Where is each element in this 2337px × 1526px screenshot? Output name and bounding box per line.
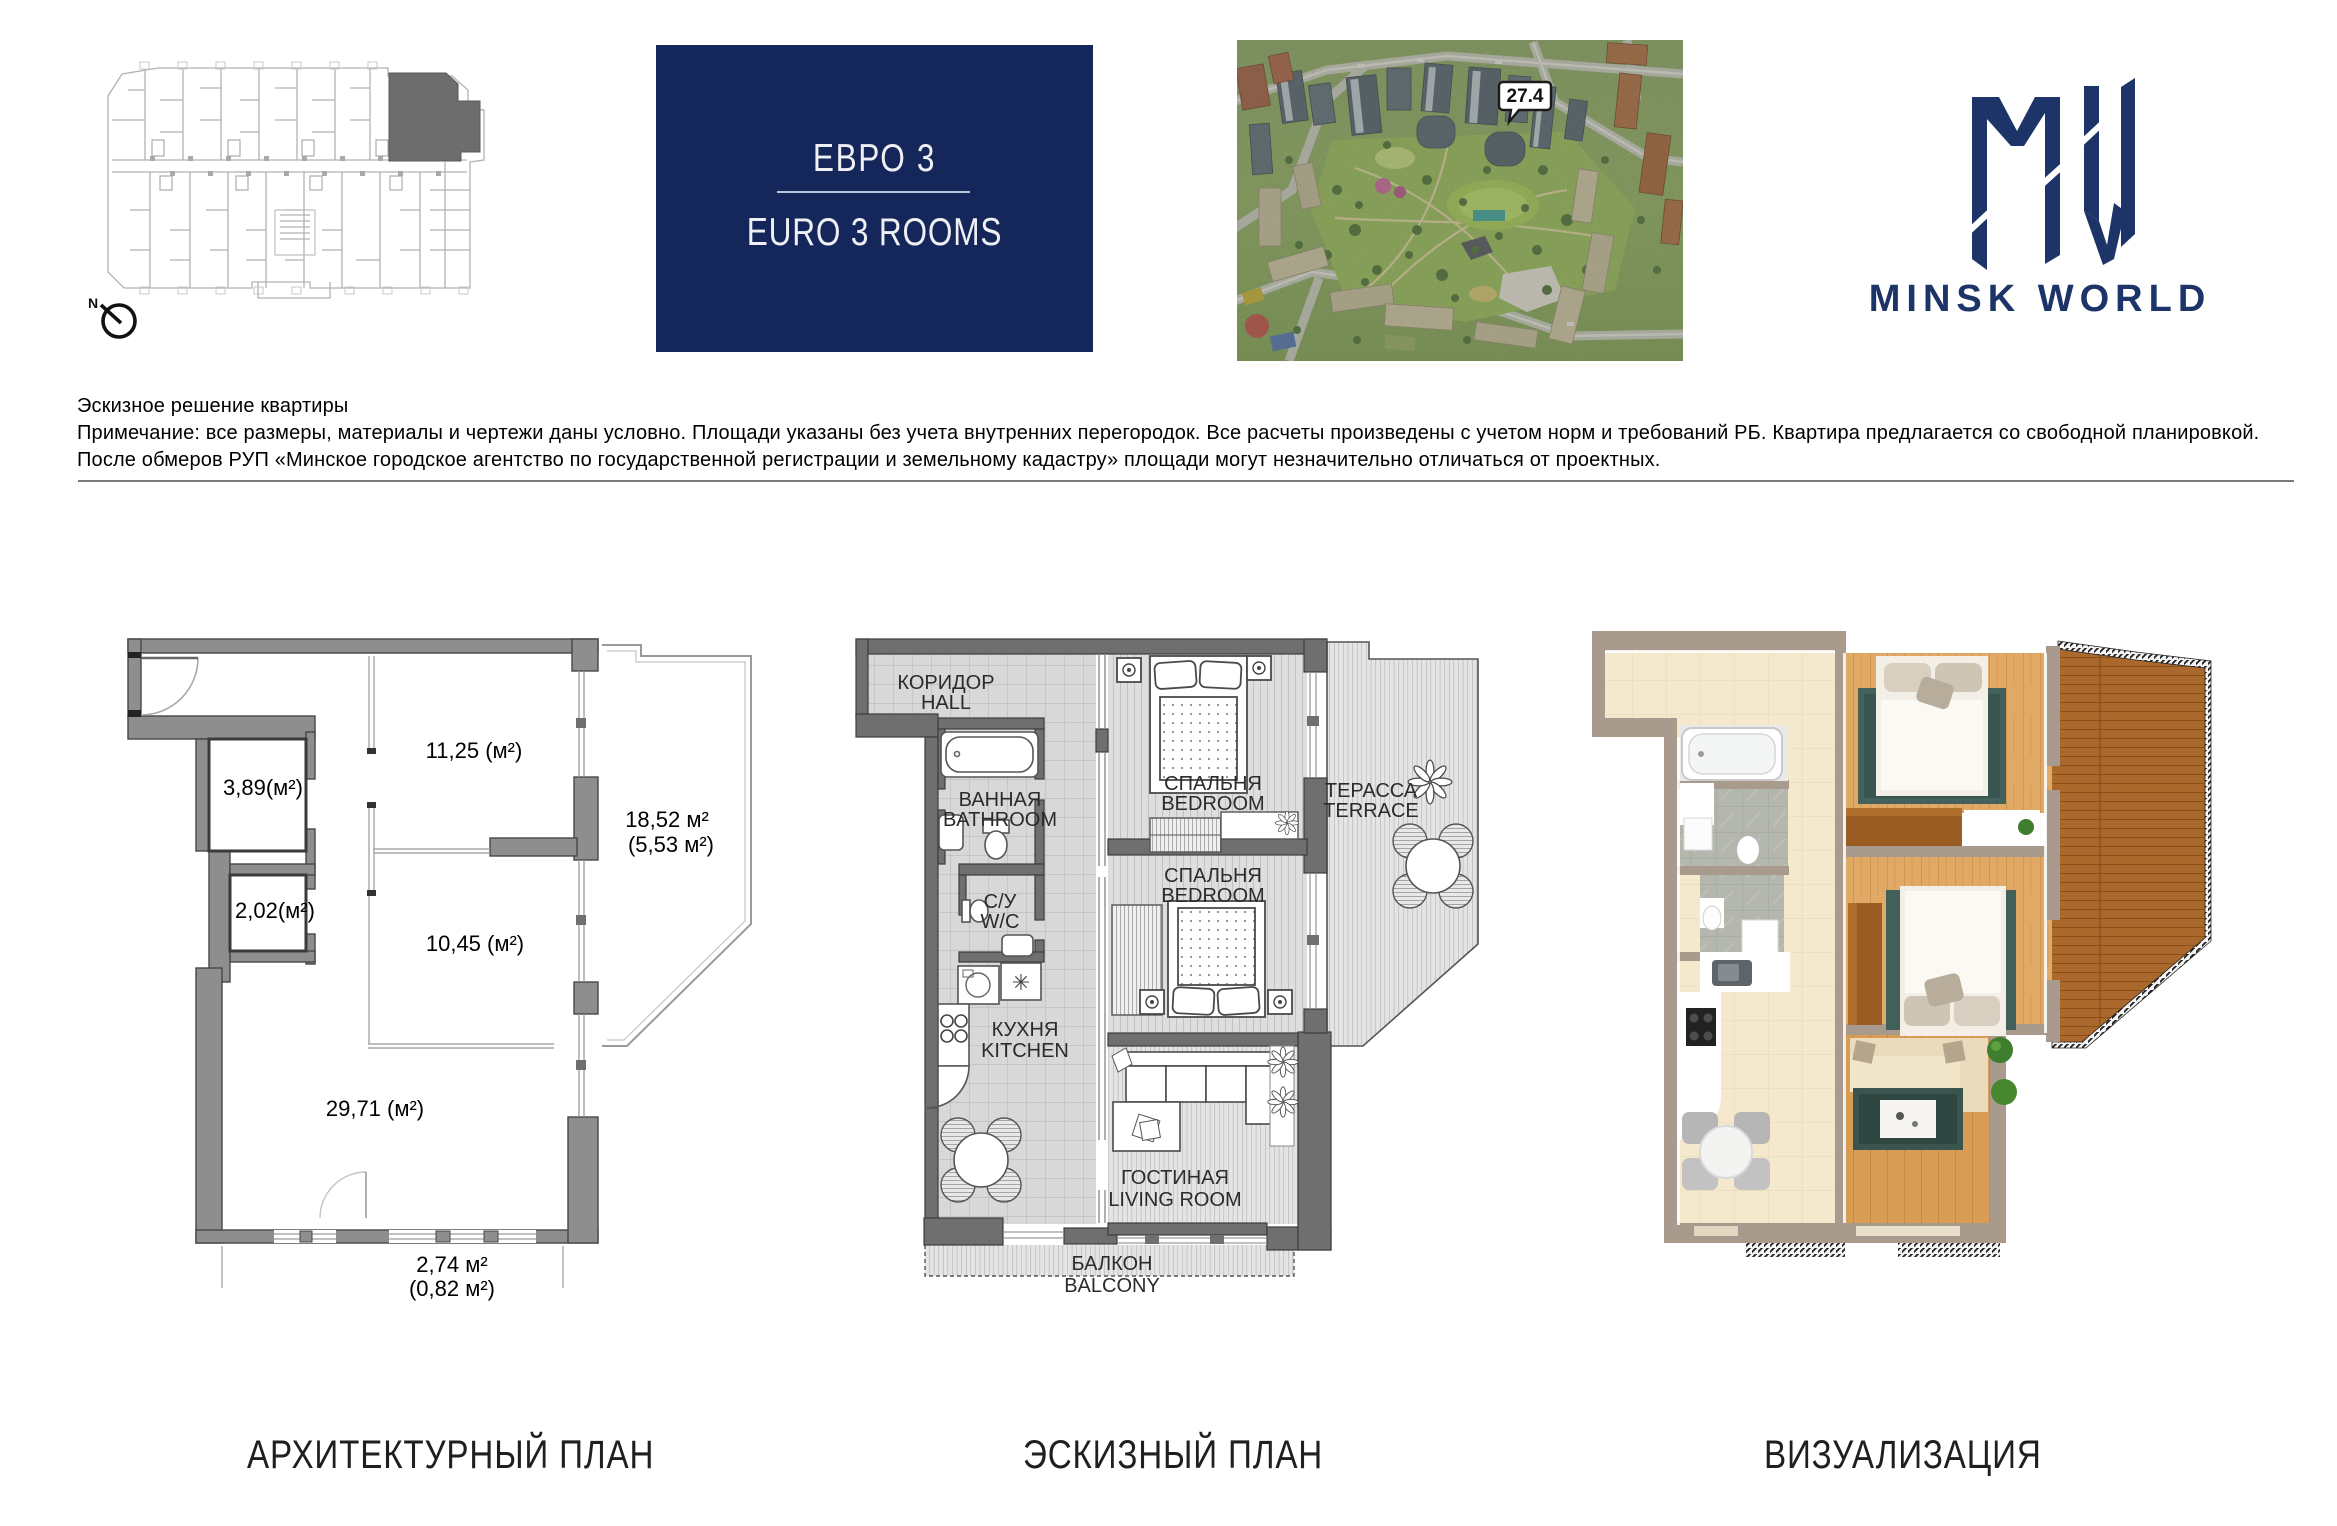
svg-text:BEDROOM: BEDROOM xyxy=(1161,793,1264,815)
svg-text:LIVING ROOM: LIVING ROOM xyxy=(1108,1189,1241,1211)
svg-text:КУХНЯ: КУХНЯ xyxy=(992,1019,1059,1041)
svg-text:ВАННАЯ: ВАННАЯ xyxy=(959,789,1042,811)
svg-text:18,52 м²: 18,52 м² xyxy=(625,807,709,832)
svg-text:✳: ✳ xyxy=(1012,970,1030,995)
svg-text:2,02(м²): 2,02(м²) xyxy=(235,898,315,923)
svg-text:BATHROOM: BATHROOM xyxy=(943,809,1057,831)
svg-text:СПАЛЬНЯ: СПАЛЬНЯ xyxy=(1164,773,1262,795)
svg-text:KITCHEN: KITCHEN xyxy=(981,1040,1069,1062)
svg-text:ГОСТИНАЯ: ГОСТИНАЯ xyxy=(1121,1167,1229,1189)
svg-text:BEDROOM: BEDROOM xyxy=(1161,885,1264,907)
svg-text:(0,82 м²): (0,82 м²) xyxy=(409,1276,495,1301)
svg-text:БАЛКОН: БАЛКОН xyxy=(1071,1253,1152,1275)
svg-text:10,45 (м²): 10,45 (м²) xyxy=(426,931,524,956)
svg-text:BALCONY: BALCONY xyxy=(1064,1275,1160,1297)
svg-text:КОРИДОР: КОРИДОР xyxy=(897,672,994,694)
svg-text:(5,53 м²): (5,53 м²) xyxy=(628,832,714,857)
svg-text:3,89(м²): 3,89(м²) xyxy=(223,775,303,800)
svg-text:TERRACE: TERRACE xyxy=(1323,800,1419,822)
svg-text:11,25 (м²): 11,25 (м²) xyxy=(426,738,523,763)
svg-text:N: N xyxy=(88,295,98,311)
svg-text:29,71 (м²): 29,71 (м²) xyxy=(326,1096,424,1121)
svg-text:СПАЛЬНЯ: СПАЛЬНЯ xyxy=(1164,865,1262,887)
svg-text:MINSK WORLD: MINSK WORLD xyxy=(1869,278,2212,320)
svg-text:27.4: 27.4 xyxy=(1507,86,1544,107)
svg-text:HALL: HALL xyxy=(921,692,971,714)
svg-text:W/C: W/C xyxy=(981,911,1020,933)
svg-text:ТЕРАССА: ТЕРАССА xyxy=(1325,780,1418,802)
svg-text:2,74 м²: 2,74 м² xyxy=(416,1252,487,1277)
svg-text:С/У: С/У xyxy=(984,891,1017,913)
